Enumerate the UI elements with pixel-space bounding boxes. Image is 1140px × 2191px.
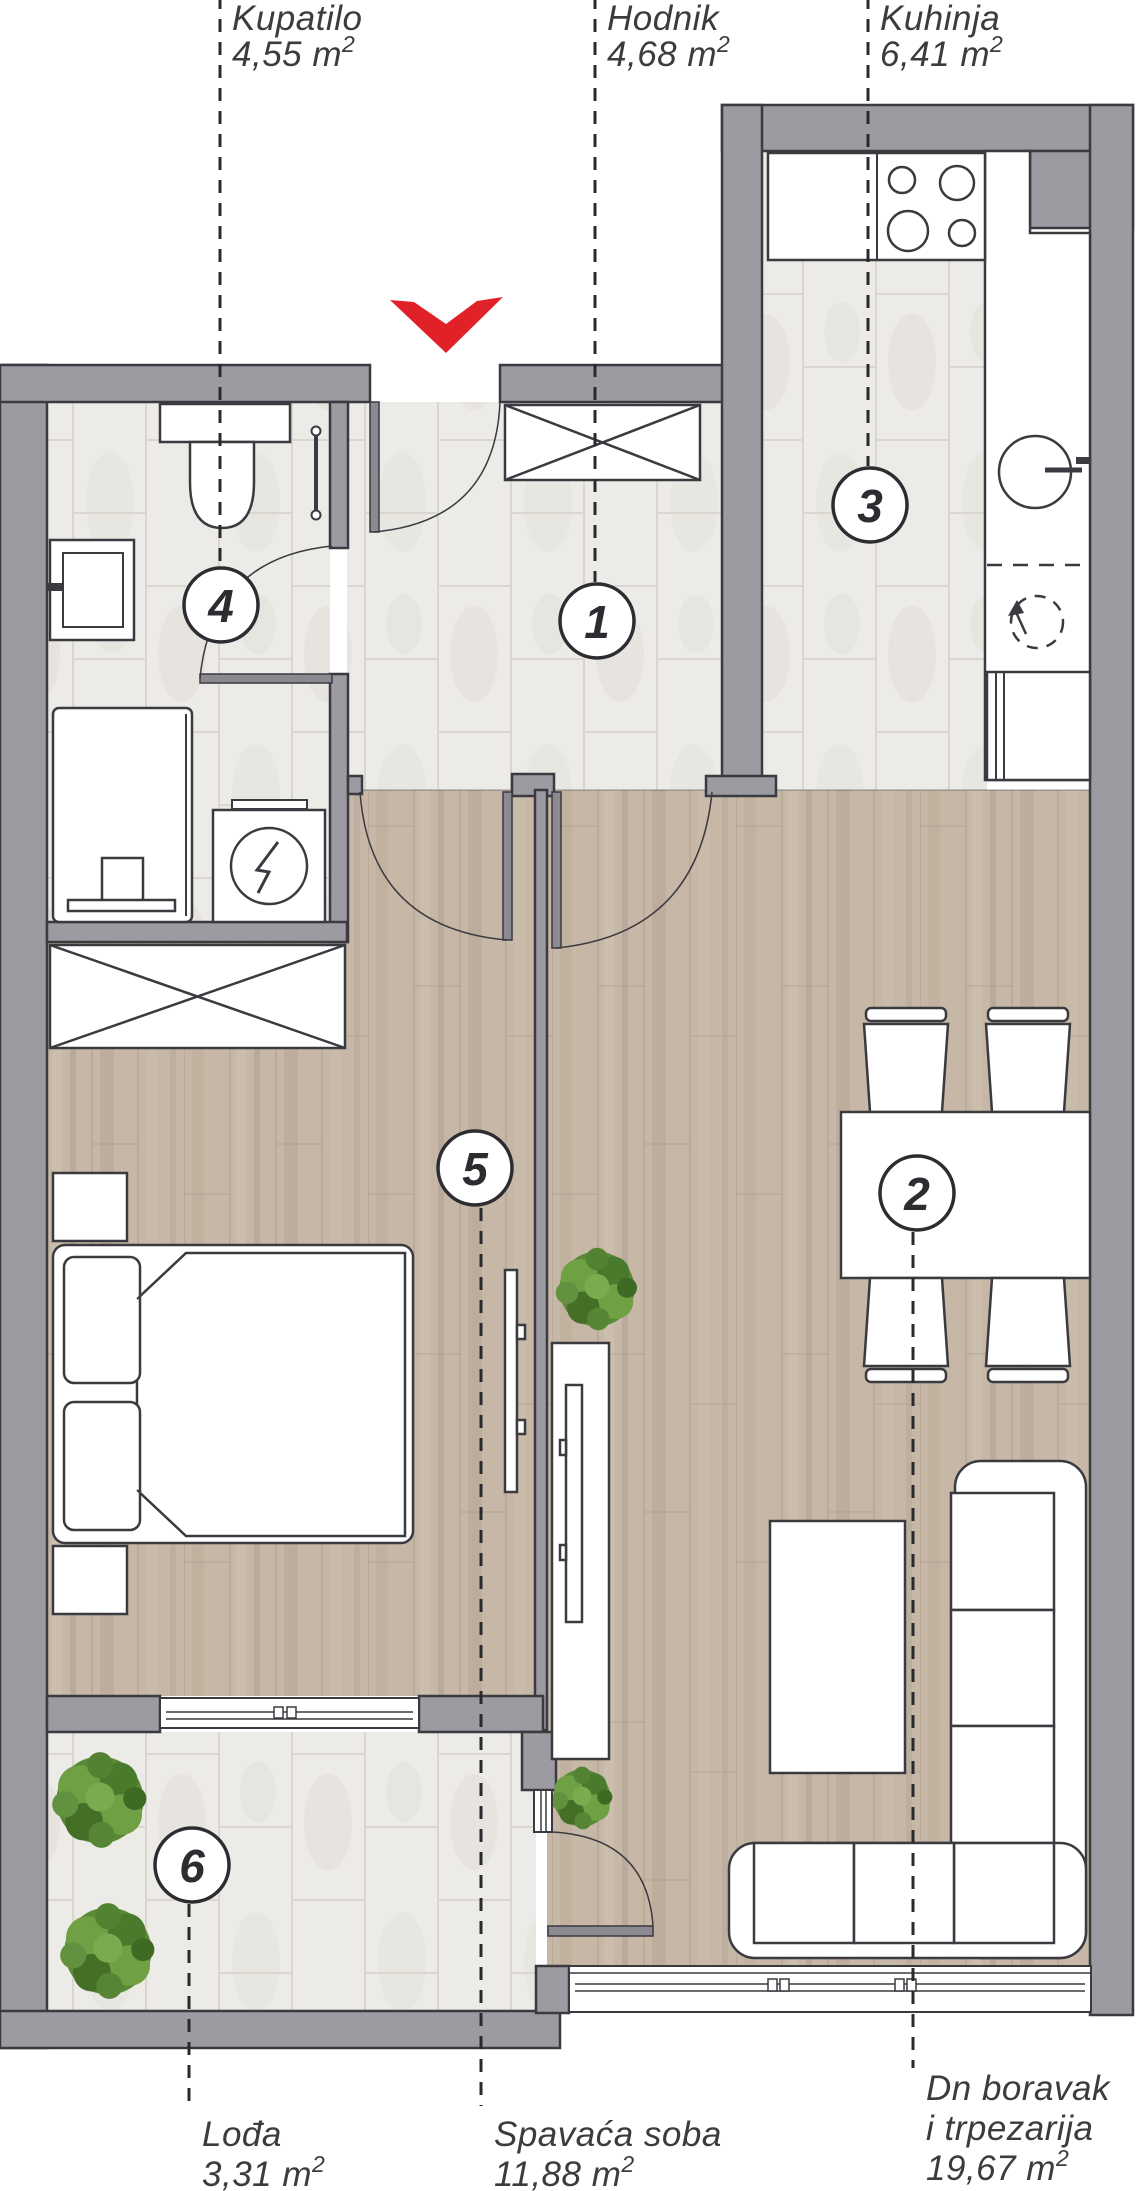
room-circle-5: 5 — [438, 1131, 512, 1205]
bathroom-bottom-wall — [47, 922, 347, 942]
room-number: 2 — [903, 1168, 930, 1220]
sofa-cushion — [951, 1493, 1054, 1610]
shower-icon — [53, 708, 192, 922]
fridge-icon — [987, 672, 1090, 780]
room-name: Kuhinja — [880, 0, 1000, 38]
room-circle-6: 6 — [155, 1828, 229, 1902]
label-kupatilo: Kupatilo 4,55 m2 — [232, 0, 362, 74]
room-name: Hodnik — [607, 0, 720, 38]
room-area: 11,88 m2 — [494, 2151, 635, 2191]
pillow — [64, 1402, 140, 1530]
exterior-wall-kitchen-top — [722, 105, 1133, 151]
dining-chair — [986, 1024, 1070, 1112]
living-room-window — [569, 1966, 1091, 2012]
dining-chair — [864, 1278, 948, 1366]
label-dn-boravak: Dn boravak i trpezarija 19,67 m2 — [926, 2069, 1111, 2188]
nightstand-bottom — [53, 1546, 127, 1614]
tv-bracket — [560, 1545, 566, 1560]
label-lodja: Lođa 3,31 m2 — [202, 2115, 325, 2191]
room-number: 4 — [207, 580, 234, 632]
room-number: 6 — [179, 1840, 205, 1892]
dining-chair — [986, 1278, 1070, 1366]
double-bed — [53, 1245, 413, 1543]
kitchen-left-wall — [722, 105, 762, 795]
kitchen-wall-cap — [706, 776, 776, 796]
room-area: 6,41 m2 — [880, 31, 1003, 74]
label-kuhinja: Kuhinja 6,41 m2 — [880, 0, 1003, 74]
room-name: Lođa — [202, 2115, 282, 2154]
room-area: 4,55 m2 — [232, 31, 355, 74]
room-name: Spavaća soba — [494, 2115, 722, 2154]
room-circle-2: 2 — [880, 1156, 954, 1230]
tv-console — [552, 1343, 609, 1759]
bedroom-living-wall — [535, 790, 547, 1730]
label-spavaca-soba: Spavaća soba 11,88 m2 — [494, 2115, 722, 2191]
living-tv-icon — [566, 1385, 582, 1622]
sofa-cushion — [954, 1843, 1054, 1943]
chair-back — [988, 1369, 1068, 1382]
bathroom-right-wall-lower — [330, 674, 348, 942]
door-stop-nub — [348, 776, 362, 794]
loggia-bottom-wall — [0, 2011, 560, 2048]
room-circle-1: 1 — [560, 584, 634, 658]
chair-back — [866, 1369, 946, 1382]
sofa-cushion — [854, 1843, 954, 1943]
room-area: 3,31 m2 — [202, 2151, 325, 2191]
mattress — [137, 1253, 405, 1536]
exterior-wall-left — [0, 365, 47, 2048]
exterior-wall-right — [1090, 105, 1133, 2015]
bathroom-right-wall-upper — [330, 402, 348, 548]
loggia-side-glass — [534, 1790, 552, 1832]
floorplan-drawing: 1 2 3 4 5 6 Kupatilo 4,55 m2 Hodnik — [0, 0, 1140, 2191]
dining-chair — [864, 1024, 948, 1112]
hallway-closet — [505, 405, 700, 480]
boiler-icon — [213, 800, 325, 922]
loggia-wall-left — [47, 1696, 160, 1732]
room-area: 19,67 m2 — [926, 2145, 1069, 2188]
room-name-line1: Dn boravak — [926, 2069, 1111, 2108]
label-hodnik: Hodnik 4,68 m2 — [607, 0, 730, 74]
exterior-wall-top-left — [0, 365, 370, 402]
bedroom-wardrobe — [50, 945, 345, 1048]
room-name-line2: i trpezarija — [926, 2109, 1093, 2148]
chair-back — [866, 1008, 946, 1021]
room-number: 5 — [462, 1143, 489, 1195]
living-bottom-left-block — [536, 1966, 569, 2013]
room-circle-4: 4 — [184, 568, 258, 642]
sofa-cushion — [951, 1610, 1054, 1726]
chair-back — [988, 1008, 1068, 1021]
washbasin-icon — [47, 540, 134, 640]
room-number: 1 — [584, 596, 610, 648]
loggia-window — [160, 1698, 419, 1728]
exterior-wall-top-mid — [500, 365, 726, 402]
room-circle-3: 3 — [833, 468, 907, 542]
sofa-cushion — [754, 1843, 854, 1943]
entrance-arrow-icon — [390, 297, 503, 353]
pillow — [64, 1257, 140, 1383]
coffee-table — [770, 1521, 905, 1773]
room-number: 3 — [857, 480, 883, 532]
tv-bracket — [560, 1440, 566, 1455]
nightstand-top — [53, 1173, 127, 1241]
floorplan-page: 1 2 3 4 5 6 Kupatilo 4,55 m2 Hodnik — [0, 0, 1140, 2191]
sofa-cushion — [951, 1726, 1054, 1843]
room-area: 4,68 m2 — [607, 31, 730, 74]
